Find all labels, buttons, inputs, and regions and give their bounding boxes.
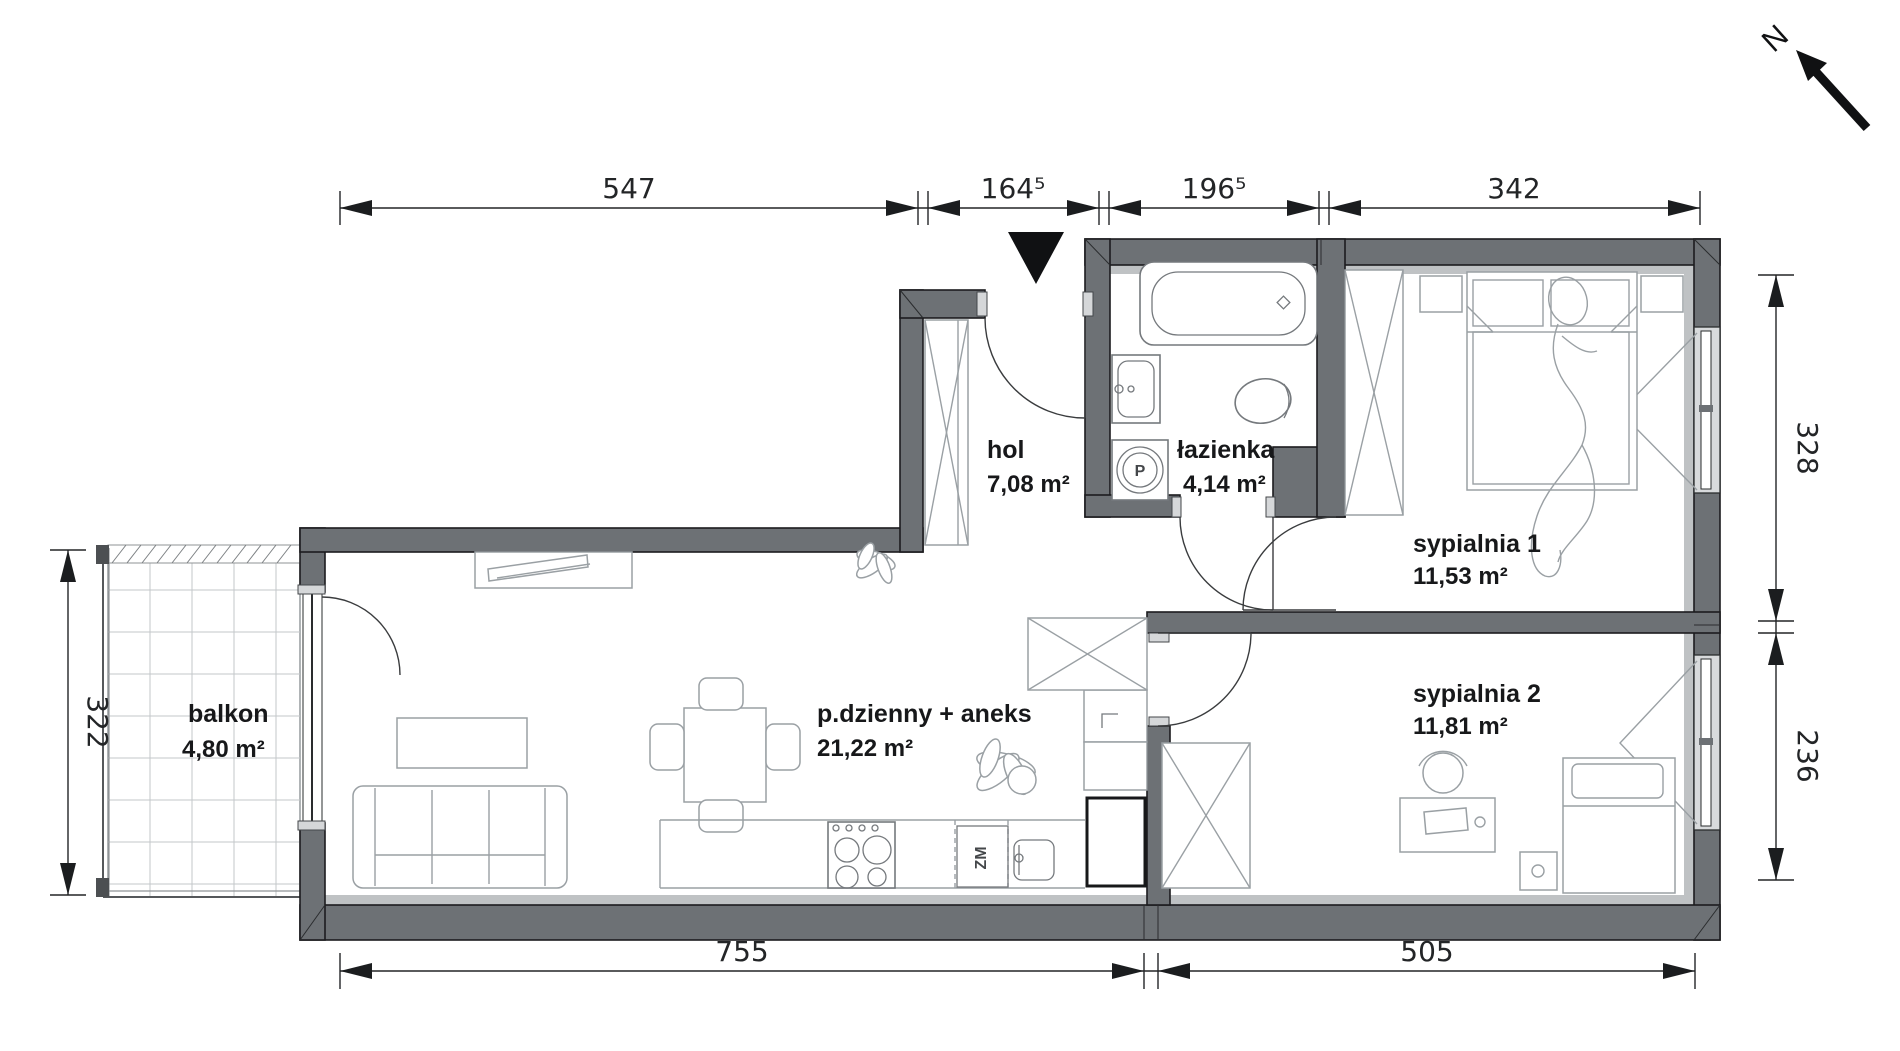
bathtub bbox=[1140, 262, 1317, 345]
wall-top bbox=[1085, 239, 1720, 265]
bedroom1-door bbox=[1243, 517, 1336, 610]
dim-top-196: 196⁵ bbox=[1182, 172, 1247, 205]
wall-bedroom-divider bbox=[1147, 612, 1720, 633]
wall-living-top bbox=[300, 528, 923, 552]
balcony-hatch-band bbox=[108, 545, 300, 563]
nightstand bbox=[1520, 852, 1557, 890]
wardrobe-hol bbox=[925, 320, 968, 545]
room-hol: hol 7,08 m² bbox=[987, 436, 1070, 498]
north-label: N bbox=[1755, 18, 1795, 59]
room-area-hol: 7,08 m² bbox=[987, 471, 1070, 498]
room-label-lazienka: łazienka bbox=[1177, 436, 1275, 464]
wall-bathroom-bedroom1-divider bbox=[1317, 239, 1345, 517]
desk bbox=[1400, 798, 1495, 852]
entrance-door bbox=[977, 292, 1093, 418]
dining-set bbox=[650, 678, 800, 832]
dining-chair bbox=[650, 724, 684, 770]
dimension-bottom: 755 505 bbox=[340, 935, 1695, 989]
laptop bbox=[1424, 808, 1468, 834]
dishwasher: ZM bbox=[957, 826, 1008, 887]
plant bbox=[972, 736, 1038, 797]
room-sypialnia2: sypialnia 2 11,81 m² bbox=[1413, 680, 1541, 740]
dim-left-322: 322 bbox=[81, 695, 114, 748]
wall-bathroom-left bbox=[1085, 239, 1110, 517]
washing-machine: P bbox=[1112, 440, 1168, 500]
room-area-lazienka: 4,14 m² bbox=[1183, 471, 1266, 498]
dim-top-164: 164⁵ bbox=[981, 172, 1046, 205]
balcony-anchor-pad bbox=[96, 545, 109, 564]
stove bbox=[828, 822, 895, 888]
dimension-right: 328 236 bbox=[1758, 275, 1824, 880]
nightstand bbox=[1641, 276, 1683, 312]
wall-hol-left bbox=[900, 290, 923, 552]
room-label-balkon: balkon bbox=[188, 700, 269, 728]
dim-top-547: 547 bbox=[602, 172, 655, 205]
sofa bbox=[353, 786, 567, 888]
washer-symbol: P bbox=[1135, 463, 1146, 480]
dim-bottom-755: 755 bbox=[715, 935, 768, 968]
coffee-table bbox=[397, 718, 527, 768]
room-label-pdzienny: p.dzienny + aneks bbox=[817, 700, 1032, 728]
dining-chair bbox=[699, 800, 743, 832]
bedroom2-door bbox=[1149, 633, 1251, 726]
room-lazienka: łazienka 4,14 m² bbox=[1177, 436, 1275, 498]
wardrobe-bedroom2 bbox=[1162, 743, 1250, 888]
dishwasher-symbol: ZM bbox=[973, 846, 990, 869]
dim-right-236: 236 bbox=[1791, 729, 1824, 782]
dining-chair bbox=[766, 724, 800, 770]
floor-plan-svg: P bbox=[0, 0, 1900, 1051]
dim-right-328: 328 bbox=[1791, 421, 1824, 474]
room-label-sypialnia2: sypialnia 2 bbox=[1413, 680, 1541, 708]
toilet bbox=[1232, 374, 1295, 427]
dimension-top: 547 164⁵ 196⁵ 342 bbox=[340, 172, 1700, 225]
floor-plan-page: P bbox=[0, 0, 1900, 1051]
fridge bbox=[1087, 798, 1145, 886]
kitchen-sink bbox=[1014, 840, 1054, 880]
room-sypialnia1: sypialnia 1 11,53 m² bbox=[1413, 530, 1541, 590]
wall-hol-top bbox=[900, 290, 985, 318]
balcony-anchor-pad bbox=[96, 878, 109, 897]
room-area-sypialnia2: 11,81 m² bbox=[1413, 713, 1508, 740]
desk-chair bbox=[1419, 751, 1467, 793]
wall-bottom bbox=[300, 905, 1720, 940]
bathroom-sink bbox=[1112, 355, 1160, 423]
bathroom-door bbox=[1172, 497, 1275, 610]
nightstand bbox=[1420, 276, 1462, 312]
kitchen-tall-units bbox=[1084, 690, 1147, 790]
room-area-sypialnia1: 11,53 m² bbox=[1413, 563, 1508, 590]
dining-chair bbox=[699, 678, 743, 710]
dimension-left: 322 bbox=[50, 550, 114, 895]
tv-console bbox=[475, 552, 632, 588]
dim-bottom-505: 505 bbox=[1400, 935, 1453, 968]
wardrobe-bedroom1 bbox=[1345, 270, 1403, 515]
balcony-door-arc bbox=[322, 597, 400, 675]
wardrobe-kitchen bbox=[1028, 618, 1147, 690]
room-label-sypialnia1: sypialnia 1 bbox=[1413, 530, 1541, 558]
room-label-hol: hol bbox=[987, 436, 1025, 464]
room-area-pdzienny: 21,22 m² bbox=[817, 735, 913, 762]
north-arrow-icon: N bbox=[1755, 18, 1867, 128]
room-area-balkon: 4,80 m² bbox=[182, 736, 265, 763]
dim-top-342: 342 bbox=[1487, 172, 1540, 205]
dining-table bbox=[684, 708, 766, 802]
bed-2 bbox=[1563, 758, 1675, 893]
entrance-marker-icon bbox=[1008, 232, 1064, 284]
